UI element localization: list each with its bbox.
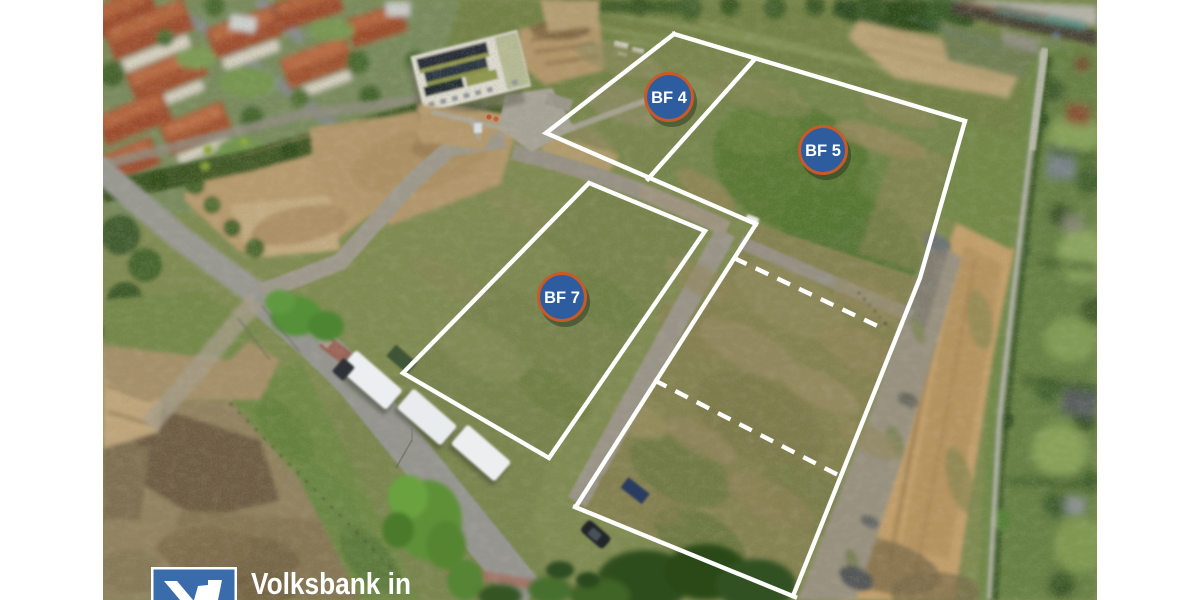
svg-text:BF 4: BF 4 bbox=[651, 89, 688, 107]
svg-text:BF 7: BF 7 bbox=[544, 289, 580, 307]
svg-text:BF 5: BF 5 bbox=[805, 142, 841, 160]
svg-text:Volksbank in: Volksbank in bbox=[251, 566, 411, 600]
